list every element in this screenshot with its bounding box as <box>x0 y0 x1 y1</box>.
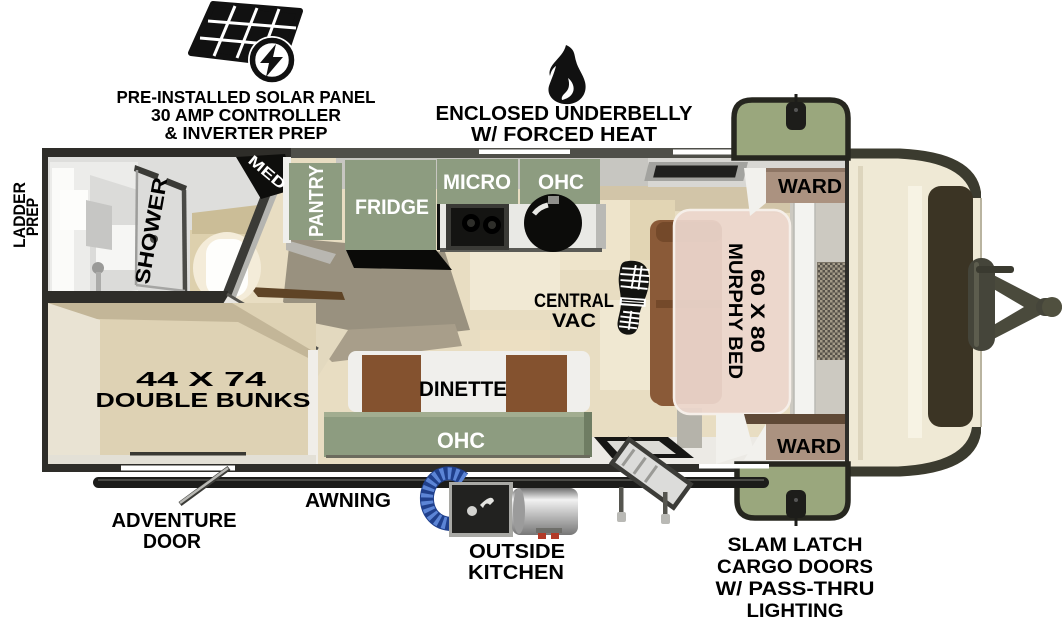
svg-text:PRE-INSTALLED SOLAR PANEL: PRE-INSTALLED SOLAR PANEL <box>117 87 376 107</box>
svg-text:DOUBLE BUNKS: DOUBLE BUNKS <box>96 389 311 412</box>
svg-text:SLAM LATCH: SLAM LATCH <box>728 534 863 556</box>
svg-text:WARD: WARD <box>778 175 842 198</box>
svg-text:CARGO DOORS: CARGO DOORS <box>717 556 873 578</box>
svg-text:CENTRAL: CENTRAL <box>534 290 614 312</box>
svg-text:& INVERTER PREP: & INVERTER PREP <box>165 123 328 143</box>
svg-text:DOOR: DOOR <box>143 530 201 553</box>
svg-text:WARD: WARD <box>777 435 841 458</box>
svg-text:PREP: PREP <box>23 198 42 236</box>
svg-text:AWNING: AWNING <box>305 489 391 512</box>
svg-text:PANTRY: PANTRY <box>306 164 328 237</box>
svg-text:W/ PASS-THRU: W/ PASS-THRU <box>716 578 875 600</box>
svg-text:FRIDGE: FRIDGE <box>355 196 429 219</box>
svg-text:OHC: OHC <box>538 170 584 194</box>
svg-text:W/ FORCED HEAT: W/ FORCED HEAT <box>471 123 657 146</box>
svg-text:44 X 74: 44 X 74 <box>136 368 267 391</box>
svg-text:VAC: VAC <box>552 310 596 332</box>
svg-text:ENCLOSED UNDERBELLY: ENCLOSED UNDERBELLY <box>436 102 693 125</box>
svg-text:MURPHY BED: MURPHY BED <box>724 243 746 379</box>
svg-text:OUTSIDE: OUTSIDE <box>469 540 565 563</box>
svg-text:OHC: OHC <box>437 428 485 453</box>
svg-text:LIGHTING: LIGHTING <box>747 600 844 621</box>
svg-text:30 AMP CONTROLLER: 30 AMP CONTROLLER <box>151 105 341 125</box>
svg-text:DINETTE: DINETTE <box>419 377 507 401</box>
svg-text:ADVENTURE: ADVENTURE <box>112 509 237 532</box>
svg-text:KITCHEN: KITCHEN <box>468 561 564 584</box>
svg-text:60 X 80: 60 X 80 <box>746 269 768 353</box>
svg-text:MICRO: MICRO <box>443 170 511 194</box>
